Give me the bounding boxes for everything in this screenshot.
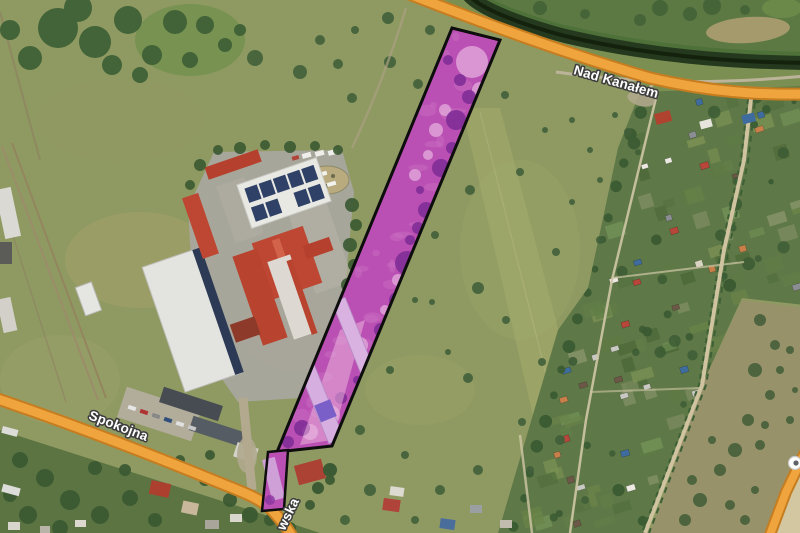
map-viewport[interactable]: Nad Kanałem Spokojna wska — [0, 0, 800, 533]
stop-marker-icon[interactable] — [789, 457, 800, 470]
satellite-map[interactable]: Nad Kanałem Spokojna wska — [0, 0, 800, 533]
